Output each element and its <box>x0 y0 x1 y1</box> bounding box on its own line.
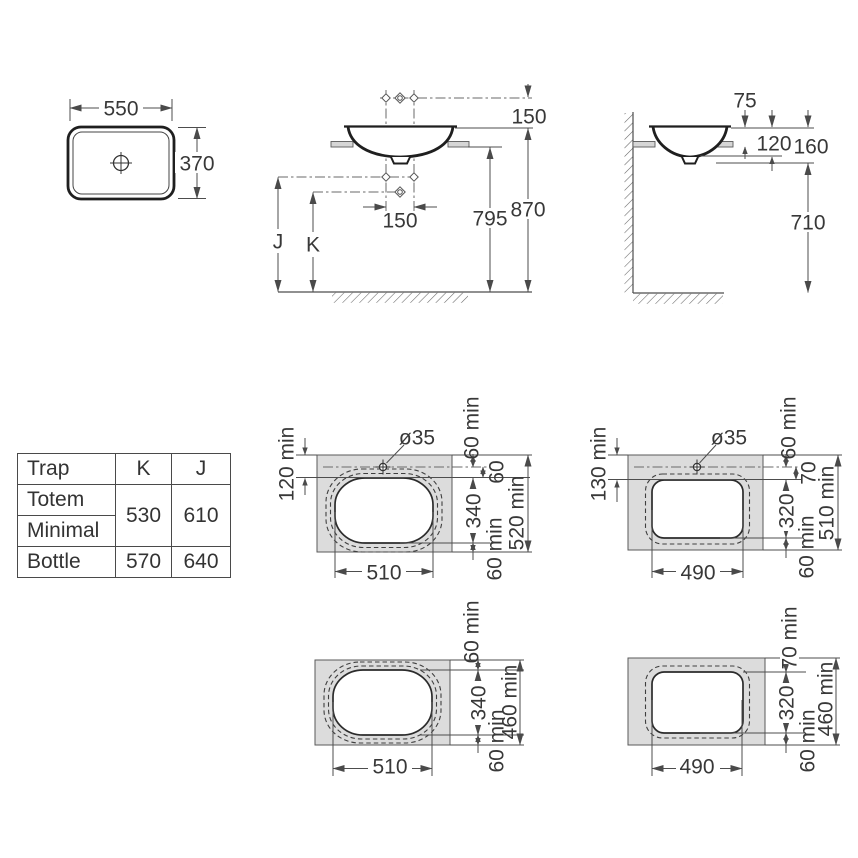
cutout-outline <box>333 670 432 735</box>
trap-k-label: K <box>306 234 320 257</box>
bottle-k-value: 570 <box>116 547 172 578</box>
edge-to-hole-label: 60 min <box>461 396 484 459</box>
cutout-outline <box>652 672 743 733</box>
countertop-right <box>448 142 469 148</box>
cutout-oval-no-tap: 60 min 340 60 min 460 min 510 <box>315 600 524 778</box>
washbasin-installation-drawing: 550 370 150 <box>0 0 858 858</box>
basin-depth-label: 370 <box>179 153 214 176</box>
countertop-left <box>633 142 655 148</box>
edge-to-cutout-label: 120 min <box>276 427 299 502</box>
min-counter-depth-label: 460 min <box>815 662 838 737</box>
cutout-oval-with-tap: ø35 120 min 60 min 60 340 60 min 520 min… <box>276 396 533 584</box>
cutout-rect-with-tap: ø35 130 min 60 min 70 320 60 min 510 min… <box>588 396 843 584</box>
rim-height-label: 870 <box>510 199 545 222</box>
tap-hole-dia-label: ø35 <box>711 427 747 450</box>
trap-bottle: Bottle <box>18 547 116 578</box>
table-header-row: Trap K J <box>18 454 231 485</box>
trap-totem: Totem <box>18 485 116 516</box>
header-k: K <box>116 454 172 485</box>
min-counter-depth-label: 520 min <box>506 476 529 551</box>
top-view: 550 370 <box>68 97 219 199</box>
totem-minimal-k-value: 530 <box>116 485 172 547</box>
cutout-width-label: 490 <box>680 562 715 585</box>
table-row: Totem 530 610 <box>18 485 231 516</box>
cutout-rect-no-tap: 70 min 320 60 min 460 min 490 <box>628 606 840 778</box>
floor-hatching <box>633 294 723 304</box>
edge-to-hole-label: 60 min <box>778 396 801 459</box>
basin-bowl <box>348 127 453 158</box>
basin-bowl <box>653 127 727 158</box>
trap-minimal: Minimal <box>18 516 116 547</box>
rim-to-holes-label: 150 <box>511 106 546 129</box>
floor-hatching <box>332 293 468 303</box>
bottle-j-value: 640 <box>172 547 231 578</box>
header-trap: Trap <box>18 454 116 485</box>
cutout-depth-label: 340 <box>463 493 486 528</box>
drain-outlet <box>391 157 410 164</box>
cutout-width-label: 490 <box>679 756 714 779</box>
tap-hole-dia-label: ø35 <box>399 427 435 450</box>
table-row: Bottle 570 640 <box>18 547 231 578</box>
drain-outlet <box>682 157 698 164</box>
above-counter-label: 75 <box>733 90 756 113</box>
front-view: 150 870 795 J K 150 <box>266 84 550 303</box>
cutout-outline <box>335 478 433 543</box>
edge-to-cutout-label: 130 min <box>588 427 611 502</box>
header-j: J <box>172 454 231 485</box>
cutout-depth-label: 320 <box>776 685 799 720</box>
min-counter-depth-label: 460 min <box>499 665 522 740</box>
countertop-left <box>331 142 353 148</box>
side-view: 75 120 160 710 <box>625 90 831 304</box>
front-margin-label: 60 min <box>461 600 484 663</box>
wall-hatching <box>625 113 633 293</box>
rear-margin-label: 60 min <box>484 517 507 580</box>
min-counter-depth-label: 510 min <box>816 466 839 541</box>
basin-width-label: 550 <box>103 98 138 121</box>
cutout-outline <box>652 480 743 538</box>
recess-depth-label: 120 <box>756 133 791 156</box>
totem-minimal-j-value: 610 <box>172 485 231 547</box>
counter-height-label: 795 <box>472 208 507 231</box>
trap-table: Trap K J Totem 530 610 Minimal Bottle 57… <box>17 453 231 578</box>
cutout-width-label: 510 <box>366 562 401 585</box>
cutout-width-label: 510 <box>372 756 407 779</box>
clearance-label: 710 <box>790 212 825 235</box>
hole-spacing-label: 150 <box>382 210 417 233</box>
drawing-canvas: 550 370 150 <box>0 0 858 858</box>
trap-j-label: J <box>273 231 284 254</box>
front-margin-label: 70 min <box>779 606 802 669</box>
basin-height-label: 160 <box>793 136 828 159</box>
